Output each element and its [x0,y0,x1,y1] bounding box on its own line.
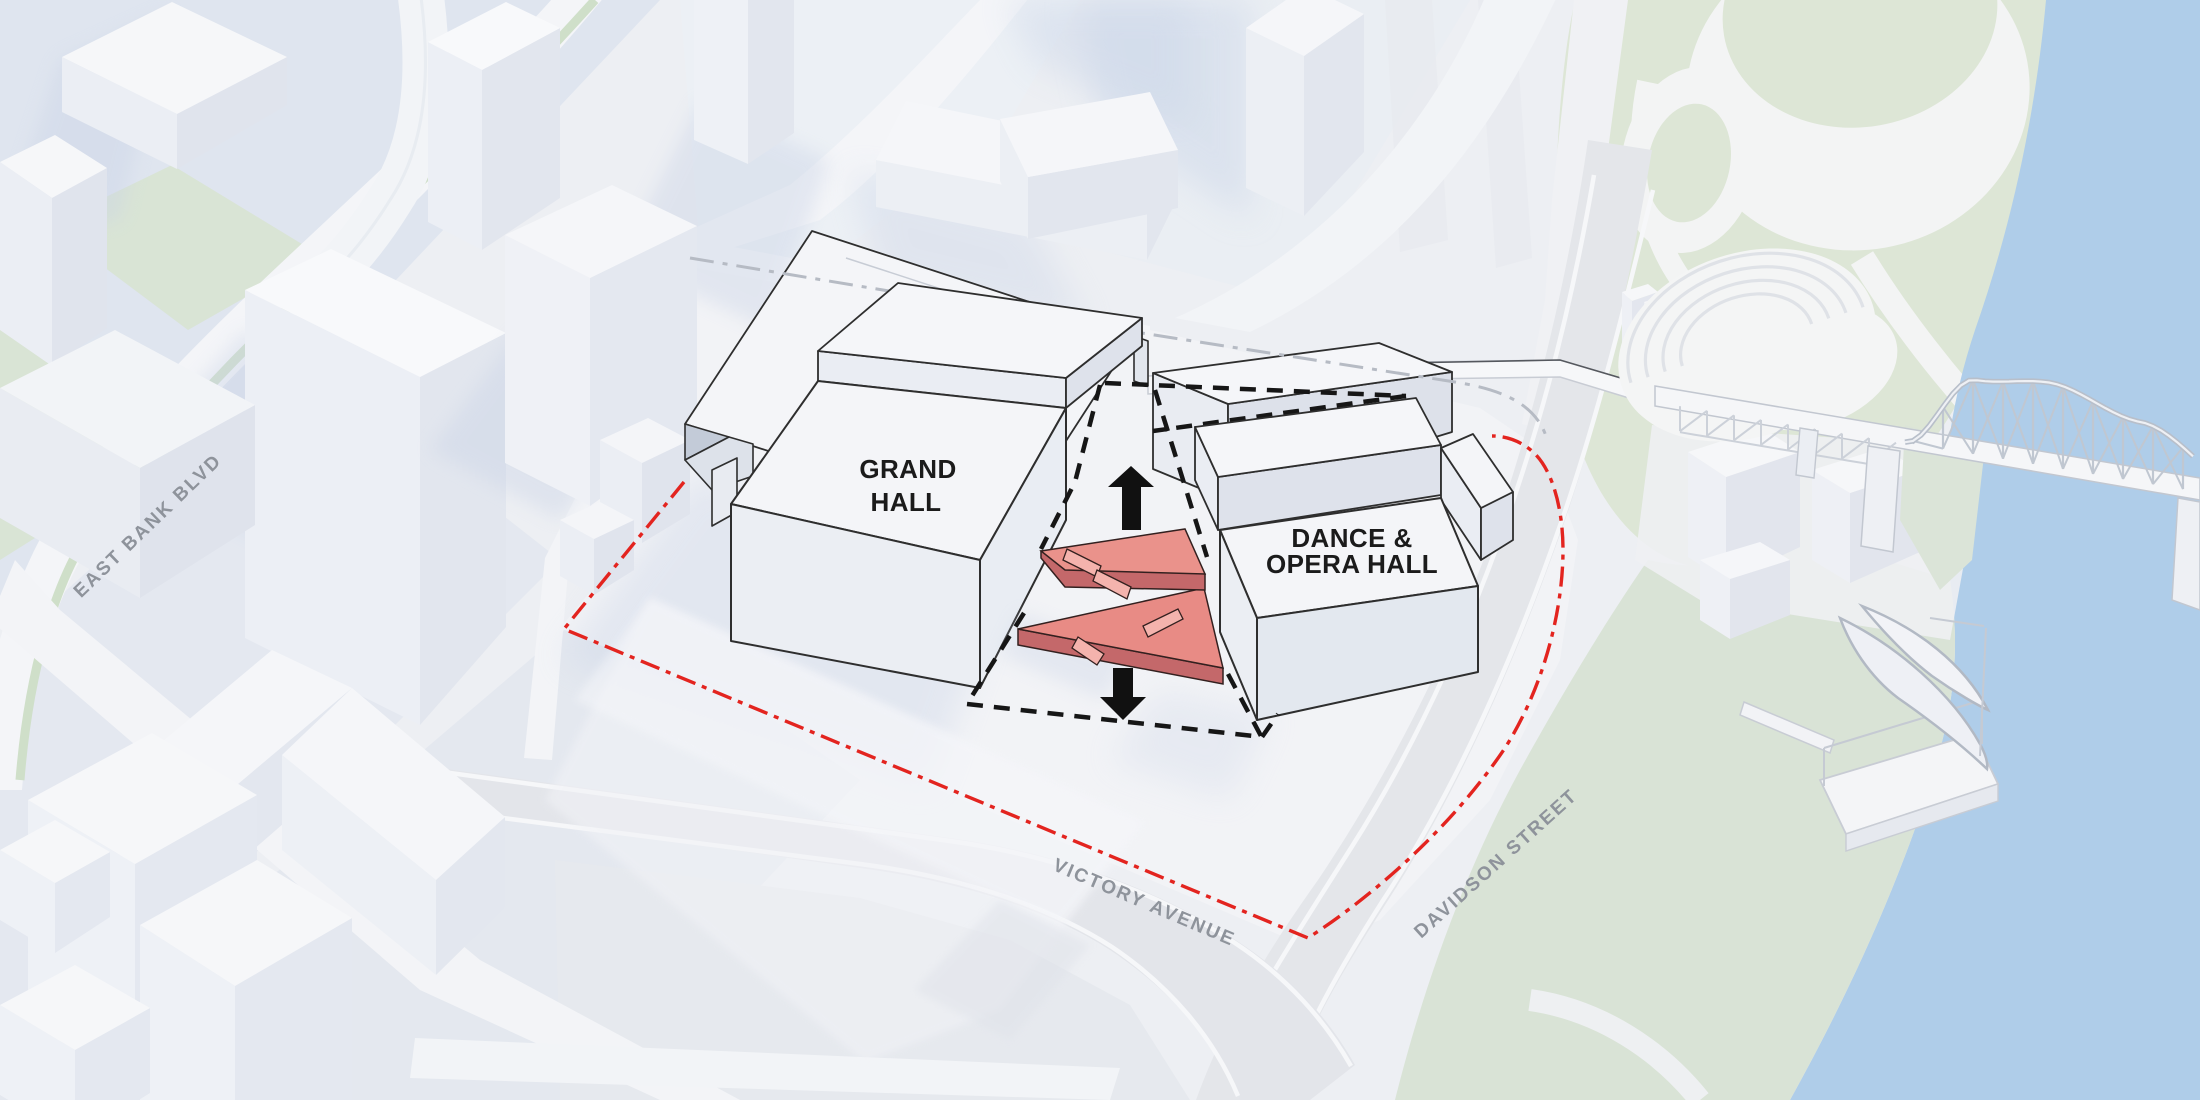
svg-text:OPERA HALL: OPERA HALL [1266,549,1438,579]
svg-text:GRAND: GRAND [859,454,956,484]
svg-text:HALL: HALL [871,487,942,517]
